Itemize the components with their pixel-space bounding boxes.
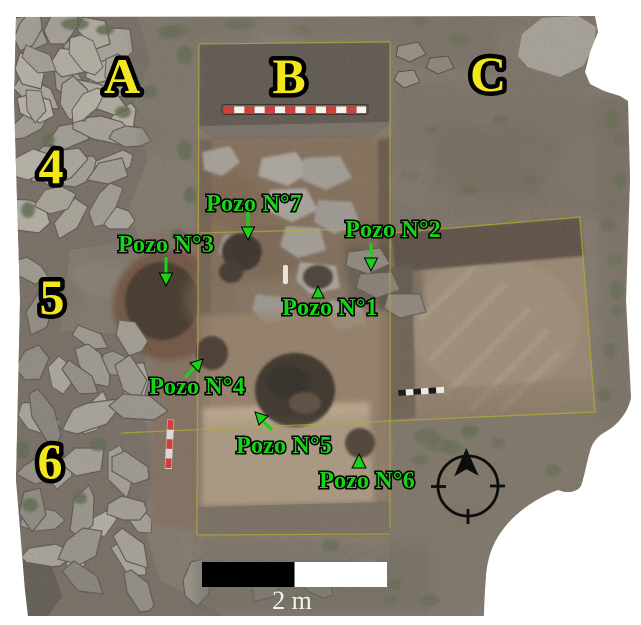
svg-text:Pozo N°3: Pozo N°3 xyxy=(118,232,214,258)
svg-text:C: C xyxy=(470,46,506,102)
svg-text:Pozo N°6: Pozo N°6 xyxy=(319,468,415,494)
svg-text:Pozo N°1: Pozo N°1 xyxy=(282,295,378,321)
svg-text:B: B xyxy=(272,48,305,104)
svg-text:5: 5 xyxy=(40,269,65,325)
svg-text:Pozo N°4: Pozo N°4 xyxy=(149,374,245,400)
svg-text:Pozo N°7: Pozo N°7 xyxy=(206,191,302,217)
svg-text:Pozo N°2: Pozo N°2 xyxy=(345,217,441,243)
svg-text:2 m: 2 m xyxy=(272,586,312,615)
svg-text:Pozo N°5: Pozo N°5 xyxy=(236,433,332,459)
svg-text:6: 6 xyxy=(38,433,63,489)
svg-text:4: 4 xyxy=(39,138,64,194)
svg-text:A: A xyxy=(104,48,140,104)
